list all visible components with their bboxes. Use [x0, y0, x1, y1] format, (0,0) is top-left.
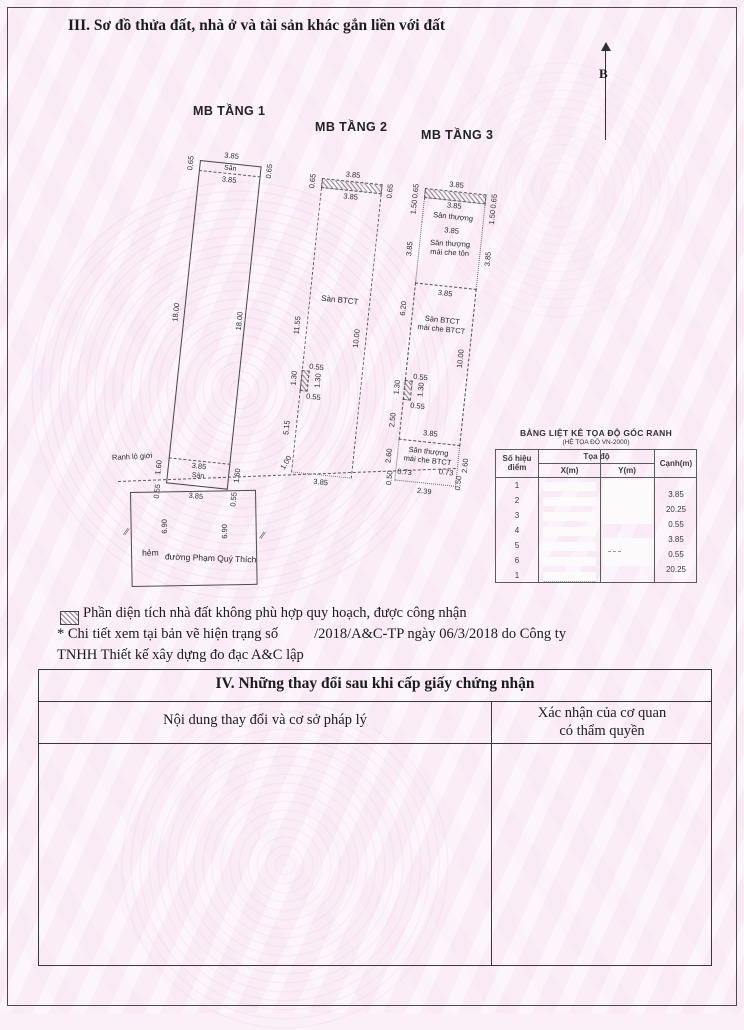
column-header: Số hiệuđiểm — [496, 454, 538, 472]
hatch-legend-icon — [60, 611, 79, 625]
redacted-value — [543, 542, 596, 551]
coordinate-table: BẢNG LIỆT KÊ TỌA ĐỘ GÓC RANH (HỆ TỌA ĐỘ … — [495, 428, 697, 583]
coordinate-table-subtitle: (HỆ TỌA ĐỘ VN-2000) — [495, 439, 697, 446]
dim-label: 1.30 — [313, 373, 322, 388]
plan2-title: MB TẦNG 2 — [315, 120, 387, 134]
section4-col2-header: Xác nhận của cơ quancó thẩm quyền — [491, 704, 713, 740]
edge-length: 0.55 — [654, 520, 698, 529]
edge-length: 20.25 — [654, 565, 698, 574]
section4-col2-line: Xác nhận của cơ quan — [538, 705, 666, 721]
redacted-value — [603, 480, 652, 524]
dim-label: 0.55 — [309, 363, 324, 372]
point-number: 2 — [496, 496, 538, 505]
dim-label: 1.50 — [410, 199, 419, 214]
grid-line — [39, 743, 711, 744]
dim-label: 3.85 — [405, 241, 414, 256]
dim-label: 0.65 — [308, 173, 317, 188]
dim-label: 0.65 — [186, 155, 195, 170]
alley-label: hẻm — [142, 549, 159, 558]
edge-length: 20.25 — [654, 505, 698, 514]
point-number: 6 — [496, 556, 538, 565]
section4-title: IV. Những thay đổi sau khi cấp giấy chứn… — [39, 675, 711, 693]
redacted-value — [543, 527, 596, 536]
street-name-label: đường Phạm Quý Thích — [165, 552, 257, 564]
plan1-title: MB TẦNG 1 — [193, 104, 265, 118]
coordinate-table-grid: Số hiệuđiểm Tọa độ X(m) Y(m) Cạnh(m) 1 2… — [495, 449, 697, 583]
column-header: X(m) — [539, 466, 600, 475]
point-number: 1 — [496, 571, 538, 580]
area-label: Sân thượngmái che tôn — [418, 237, 481, 258]
certificate-page: { "page": { "section3_title": "III. Sơ đ… — [0, 0, 744, 1013]
dim-label: 2.60 — [384, 448, 393, 463]
point-number: 5 — [496, 541, 538, 550]
column-header-line: Số hiệu — [503, 454, 532, 463]
dim-label: 0.73 — [438, 468, 453, 477]
legend-text: Phần diện tích nhà đất không phù hợp quy… — [83, 605, 467, 622]
north-arrow-head — [601, 42, 611, 51]
point-number: 1 — [496, 481, 538, 490]
note-part1: * Chi tiết xem tại bản vẽ hiện trạng số — [57, 626, 278, 642]
redacted-value — [543, 497, 596, 506]
section4-table: IV. Những thay đổi sau khi cấp giấy chứn… — [38, 669, 712, 966]
note-line-1: * Chi tiết xem tại bản vẽ hiện trạng số/… — [57, 626, 566, 643]
note-line-2: TNHH Thiết kế xây dựng đo đạc A&C lập — [57, 647, 304, 664]
dim-label: 2.50 — [388, 412, 397, 427]
section4-col1-header: Nội dung thay đổi và cơ sở pháp lý — [39, 712, 491, 729]
dim-label: 0.73 — [397, 468, 412, 477]
street-box: ⫽ ⫽ 6.90 6.90 hẻm đường Phạm Quý Thích — [130, 490, 258, 587]
redacted-value — [543, 572, 596, 582]
column-header: Cạnh(m) — [654, 459, 698, 468]
north-arrow-line — [605, 48, 606, 140]
column-header: Tọa độ — [539, 452, 654, 461]
point-number: 3 — [496, 511, 538, 520]
redacted-value — [543, 512, 596, 521]
dim-label: 6.90 — [221, 524, 229, 539]
grid-line — [654, 450, 655, 582]
grid-line — [491, 701, 492, 965]
dim-label: 6.20 — [399, 301, 408, 316]
grid-line — [496, 477, 696, 478]
grid-line — [39, 701, 711, 702]
dim-label: 1.60 — [154, 460, 163, 475]
column-header: Y(m) — [600, 466, 654, 475]
dim-label: 1.30 — [416, 382, 425, 397]
edge-length: 0.55 — [654, 550, 698, 559]
section3-title: III. Sơ đồ thửa đất, nhà ở và tài sản kh… — [68, 17, 445, 35]
edge-length: 3.85 — [654, 490, 698, 499]
dim-label: 0.55 — [306, 393, 321, 402]
dim-label: 0.55 — [410, 402, 425, 411]
point-number: 4 — [496, 526, 538, 535]
dim-label: 6.90 — [161, 519, 169, 534]
coordinate-table-title: BẢNG LIỆT KÊ TỌA ĐỘ GÓC RANH — [495, 428, 697, 438]
dim-label: 5.15 — [282, 420, 291, 435]
dim-label: 0.50 — [385, 470, 394, 485]
dim-label: 0.65 — [411, 183, 420, 198]
dim-label: 0.55 — [413, 373, 428, 382]
redacted-value — [543, 557, 596, 566]
plan3-title: MB TẦNG 3 — [421, 128, 493, 142]
faint-dash — [608, 551, 621, 552]
dim-label: 1.30 — [393, 380, 402, 395]
note-part2: /2018/A&C-TP ngày 06/3/2018 do Công ty — [314, 626, 566, 642]
redacted-value — [543, 482, 596, 491]
dim-label: 1.30 — [289, 371, 298, 386]
redacted-value — [603, 538, 652, 566]
column-header-line: điểm — [508, 463, 527, 472]
section4-col2-line: có thẩm quyền — [559, 723, 644, 739]
edge-length: 3.85 — [654, 535, 698, 544]
north-label: B — [599, 66, 608, 82]
grid-line — [539, 463, 654, 464]
